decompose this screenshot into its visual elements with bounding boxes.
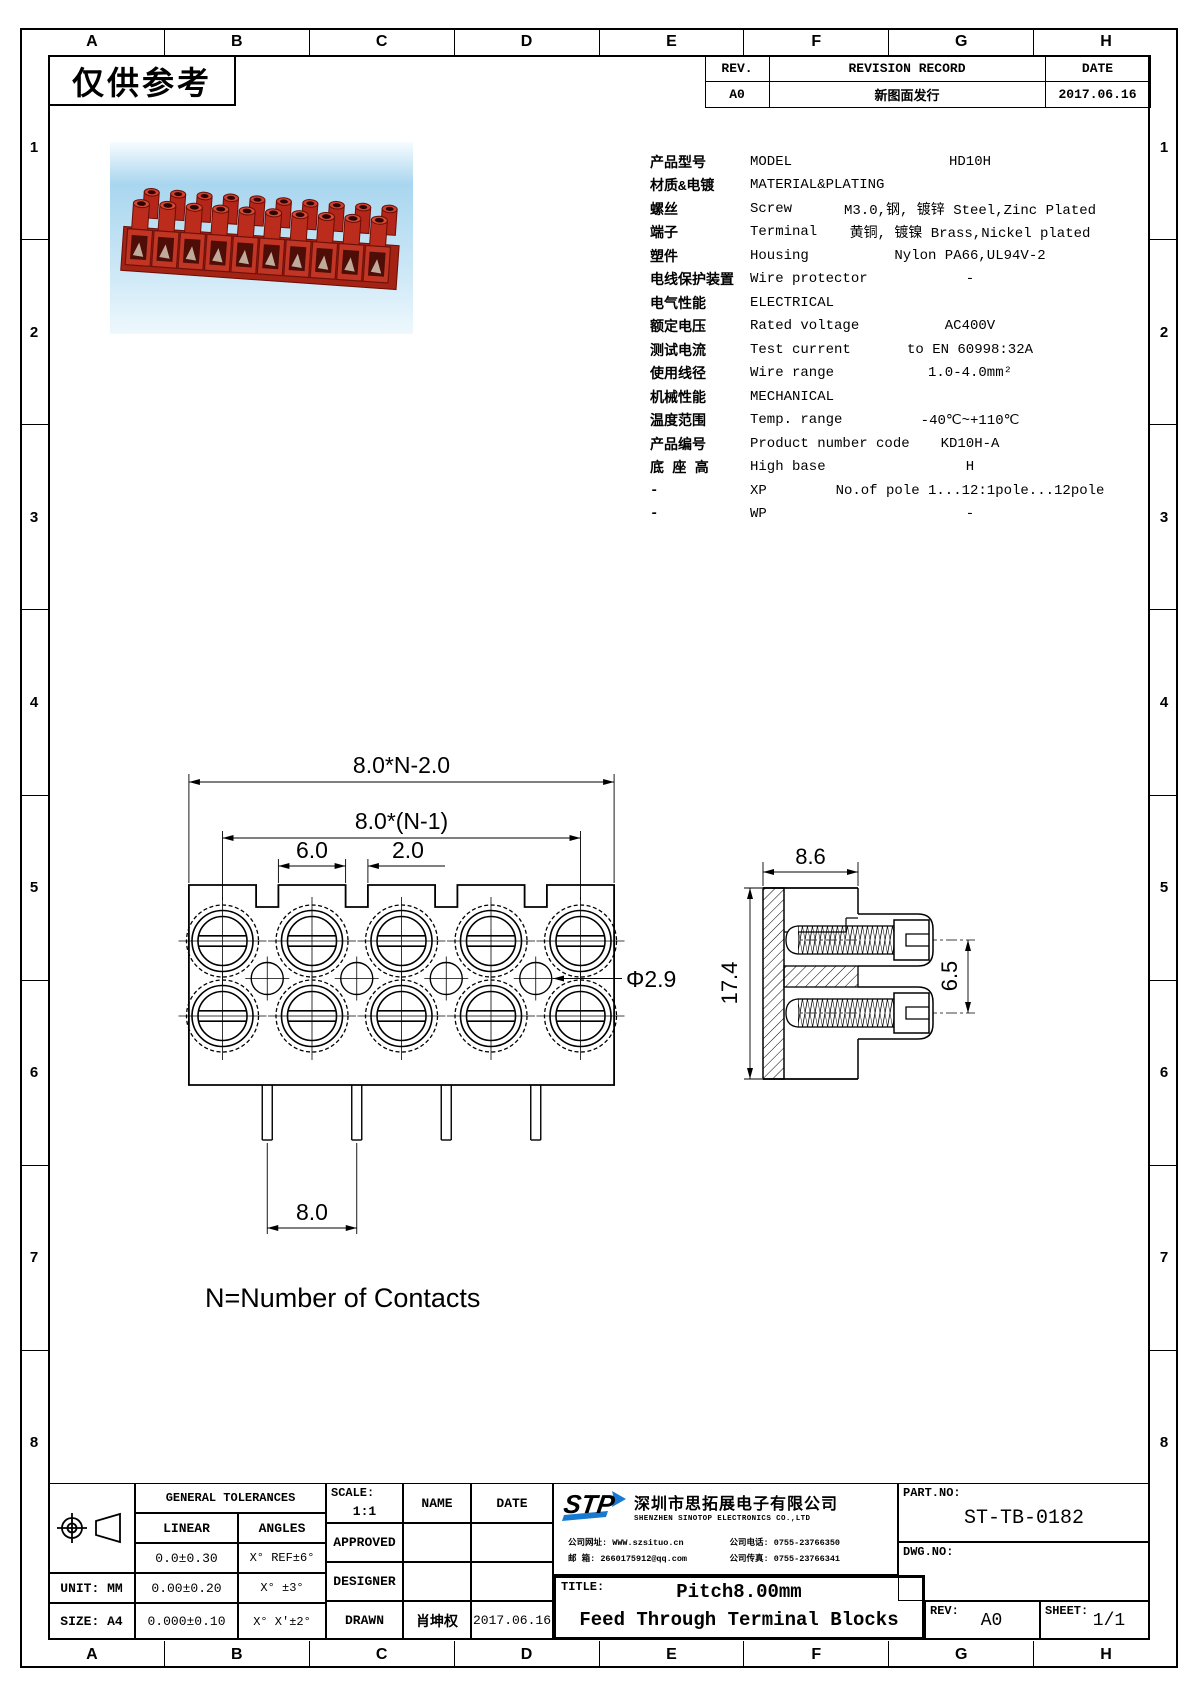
grid-letter: D [455, 28, 600, 55]
phone-value: 0755-23766350 [774, 1538, 840, 1548]
company-phone: 公司电话: 0755-23766350 [730, 1536, 892, 1552]
spec-label-cn: - [650, 503, 750, 527]
drawn-date: 2017.06.16 [471, 1601, 553, 1640]
contacts-note: N=Number of Contacts [205, 1283, 480, 1314]
spec-label-cn: 材质&电镀 [650, 174, 750, 198]
drawing-title-line2: Feed Through Terminal Blocks [556, 1609, 922, 1631]
spec-value-text: M3.0,钢, 镀锌 Steel,Zinc Plated [844, 199, 1096, 219]
grid-number: 7 [20, 1166, 48, 1351]
spec-value: to EN 60998:32A [915, 338, 1025, 362]
company-email: 邮 箱: 2660175912@qq.com [568, 1552, 730, 1568]
product-photo [110, 142, 413, 334]
grid-letters-top: A B C D E F G H [20, 28, 1178, 55]
designer-name [403, 1562, 471, 1601]
side-view-drawing: 8.6 17.4 6.5 [700, 820, 1010, 1120]
spec-label-cn: - [650, 479, 750, 503]
revision-table: REV. REVISION RECORD DATE A0 新图面发行 2017.… [705, 55, 1150, 107]
revision-record-value: 新图面发行 [769, 81, 1046, 108]
scale-cell: SCALE: 1:1 [326, 1483, 403, 1523]
spec-label-en: MECHANICAL [750, 385, 915, 409]
angles-tol-2: X° ±3° [238, 1573, 326, 1603]
spec-value-text: No.of pole 1...12:1pole...12pole [836, 483, 1105, 499]
phone-label: 公司电话: [730, 1538, 769, 1548]
company-website: 公司网址: WWW.szsituo.cn [568, 1536, 730, 1552]
spec-value: KD10H-A [915, 432, 1025, 456]
spec-label-en: Housing [750, 244, 915, 268]
reference-only-stamp: 仅供参考 [48, 55, 236, 106]
grid-letter: E [600, 28, 745, 55]
spec-value: 1.0-4.0mm² [915, 362, 1025, 386]
side-screw-upper [786, 914, 975, 966]
name-header: NAME [403, 1483, 471, 1523]
spec-value-text: 1.0-4.0mm² [928, 365, 1012, 381]
grid-number: 4 [20, 610, 48, 795]
rev-label: REV: [930, 1604, 959, 1618]
spec-label-cn: 产品型号 [650, 150, 750, 174]
tolerances-header: GENERAL TOLERANCES [135, 1483, 326, 1513]
spec-label-cn: 电气性能 [650, 291, 750, 315]
approved-name [403, 1523, 471, 1562]
dim-pitch: 8.0 [296, 1199, 328, 1225]
dim-side-width: 8.6 [795, 844, 826, 869]
drawn-name: 肖坤权 [403, 1601, 471, 1640]
grid-letter: G [889, 1641, 1034, 1668]
spec-value-text: -40℃~+110℃ [921, 412, 1020, 429]
spec-value: - [915, 268, 1025, 292]
approved-label: APPROVED [326, 1523, 403, 1562]
grid-number: 2 [1150, 240, 1178, 425]
grid-letter: E [600, 1641, 745, 1668]
grid-letter: B [165, 28, 310, 55]
angles-tol-3: X° X'±2° [238, 1603, 326, 1640]
grid-number: 6 [1150, 981, 1178, 1166]
spec-value: - [915, 503, 1025, 527]
dim-side-height: 17.4 [717, 962, 742, 1005]
grid-letter: B [165, 1641, 310, 1668]
sheet-label: SHEET: [1045, 1604, 1088, 1618]
grid-letter: A [20, 1641, 165, 1668]
scale-value: 1:1 [353, 1504, 376, 1519]
stp-logo: STP [562, 1489, 626, 1523]
part-no-cell: PART.NO: ST-TB-0182 [898, 1483, 1150, 1542]
housing-section [763, 888, 858, 1079]
grid-letter: D [455, 1641, 600, 1668]
grid-letter: H [1034, 28, 1178, 55]
email-label: 邮 箱: [568, 1554, 595, 1564]
revision-date-value: 2017.06.16 [1045, 81, 1151, 108]
company-contacts: 公司网址: WWW.szsituo.cn 公司电话: 0755-23766350… [568, 1536, 891, 1568]
email-value: 2660175912@qq.com [600, 1554, 687, 1564]
sheet-value: 1/1 [1093, 1611, 1125, 1631]
spec-value: No.of pole 1...12:1pole...12pole [915, 479, 1025, 503]
drawing-title-line1: Pitch8.00mm [556, 1581, 922, 1603]
approved-date [471, 1523, 553, 1562]
grid-letter: G [889, 28, 1034, 55]
spec-label-en: MATERIAL&PLATING [750, 174, 915, 198]
sheet-cell: SHEET: 1/1 [1040, 1601, 1150, 1640]
rev-header: REV. [705, 55, 770, 82]
fax-label: 公司传真: [730, 1554, 769, 1564]
dim-overall: 8.0*N-2.0 [353, 752, 450, 778]
dwg-no-cell: DWG.NO: [898, 1542, 1150, 1601]
spec-label-cn: 使用线径 [650, 362, 750, 386]
dim-screw-spacing: 6.5 [937, 961, 962, 992]
spec-label-en: WP [750, 503, 915, 527]
spec-label-cn: 塑件 [650, 244, 750, 268]
company-name-en: SHENZHEN SINOTOP ELECTRONICS CO.,LTD [634, 1515, 838, 1523]
spec-label-en: Rated voltage [750, 315, 915, 339]
unit-cell: UNIT: MM [48, 1573, 135, 1603]
part-no-value: ST-TB-0182 [964, 1507, 1084, 1530]
dwg-no-label: DWG.NO: [903, 1545, 953, 1559]
spec-label-en: Temp. range [750, 409, 915, 433]
spec-value: M3.0,钢, 镀锌 Steel,Zinc Plated [915, 197, 1025, 221]
spec-value-text: AC400V [945, 318, 995, 334]
company-name-cn: 深圳市思拓展电子有限公司 [634, 1490, 838, 1514]
spec-value-text: - [966, 506, 974, 522]
spec-label-en: MODEL [750, 150, 915, 174]
grid-number: 4 [1150, 610, 1178, 795]
grid-letter: A [20, 28, 165, 55]
grid-letter: H [1034, 1641, 1178, 1668]
spec-label-en: Wire protector [750, 268, 915, 292]
spec-value-text: to EN 60998:32A [907, 342, 1033, 358]
spec-label-cn: 产品编号 [650, 432, 750, 456]
dim-pitch-total: 8.0*(N-1) [355, 808, 448, 834]
grid-number: 8 [1150, 1351, 1178, 1535]
spec-label-cn: 温度范围 [650, 409, 750, 433]
spec-value: HD10H [915, 150, 1025, 174]
spec-value: H [915, 456, 1025, 480]
spec-label-cn: 额定电压 [650, 315, 750, 339]
spec-value: -40℃~+110℃ [915, 409, 1025, 433]
grid-number: 3 [20, 425, 48, 610]
angles-tol-1: X° REF±6° [238, 1543, 326, 1573]
title-cell: TITLE: Pitch8.00mm Feed Through Terminal… [553, 1575, 925, 1640]
spec-value-text: - [966, 271, 974, 287]
grid-letter: F [744, 28, 889, 55]
grid-number: 3 [1150, 425, 1178, 610]
designer-label: DESIGNER [326, 1562, 403, 1601]
projection-symbol-icon [54, 1508, 130, 1548]
linear-tol-3: 0.000±0.10 [135, 1603, 238, 1640]
spec-value-text: KD10H-A [941, 436, 1000, 452]
projection-symbol-cell [48, 1483, 135, 1573]
website-value: WWW.szsituo.cn [612, 1538, 683, 1548]
spec-value [915, 174, 1025, 198]
rev-cell: REV: A0 [925, 1601, 1040, 1640]
spec-label-cn: 机械性能 [650, 385, 750, 409]
spec-value [915, 291, 1025, 315]
drawn-label: DRAWN [326, 1601, 403, 1640]
spec-value: AC400V [915, 315, 1025, 339]
grid-letter: C [310, 1641, 455, 1668]
spec-label-cn: 底 座 高 [650, 456, 750, 480]
website-label: 公司网址: [568, 1538, 607, 1548]
title-block: UNIT: MM SIZE: A4 GENERAL TOLERANCES LIN… [48, 1483, 1150, 1640]
dim-gap: 2.0 [392, 837, 424, 863]
date-header: DATE [1045, 55, 1151, 82]
spec-value: 黄铜, 镀镍 Brass,Nickel plated [915, 221, 1025, 245]
rev-value: A0 [981, 1611, 1003, 1631]
rev-value: A0 [705, 81, 770, 108]
spec-label-cn: 电线保护装置 [650, 268, 750, 292]
spec-label-cn: 螺丝 [650, 197, 750, 221]
grid-number: 8 [20, 1351, 48, 1535]
spec-label-cn: 测试电流 [650, 338, 750, 362]
spec-label-en: Test current [750, 338, 915, 362]
center-wall-section [784, 966, 858, 987]
grid-number: 1 [1150, 55, 1178, 240]
grid-number: 1 [20, 55, 48, 240]
grid-letter: F [744, 1641, 889, 1668]
date-header: DATE [471, 1483, 553, 1523]
dim-tab: 6.0 [296, 837, 328, 863]
stp-logo-text: STP [562, 1489, 617, 1519]
linear-tol-1: 0.0±0.30 [135, 1543, 238, 1573]
designer-date [471, 1562, 553, 1601]
revision-record-header: REVISION RECORD [769, 55, 1046, 82]
drawing-sheet: A B C D E F G H A B C D E F G H 1 2 3 4 … [0, 0, 1199, 1696]
grid-number: 6 [20, 981, 48, 1166]
grid-letters-bottom: A B C D E F G H [20, 1641, 1178, 1668]
spec-value-text: Nylon PA66,UL94V-2 [894, 248, 1045, 264]
dim-hole: Φ2.9 [626, 966, 676, 992]
part-no-label: PART.NO: [903, 1486, 961, 1500]
spec-value [915, 385, 1025, 409]
company-fax: 公司传真: 0755-23766341 [730, 1552, 892, 1568]
grid-letter: C [310, 28, 455, 55]
spec-value-text: HD10H [949, 154, 991, 170]
spec-table: 产品型号 MODEL HD10H 材质&电镀 MATERIAL&PLATING … [650, 150, 1075, 526]
grid-number: 2 [20, 240, 48, 425]
spec-label-en: ELECTRICAL [750, 291, 915, 315]
company-cell: STP 深圳市思拓展电子有限公司 SHENZHEN SINOTOP ELECTR… [553, 1483, 898, 1575]
angles-header: ANGLES [238, 1513, 326, 1543]
grid-number: 5 [1150, 796, 1178, 981]
grid-numbers-left: 1 2 3 4 5 6 7 8 [20, 55, 48, 1535]
spec-label-en: Product number code [750, 432, 915, 456]
scale-label: SCALE: [331, 1486, 374, 1500]
side-screw-lower [786, 987, 975, 1039]
linear-header: LINEAR [135, 1513, 238, 1543]
size-cell: SIZE: A4 [48, 1603, 135, 1640]
bottom-slots [262, 1085, 541, 1140]
spec-value-text: H [966, 459, 974, 475]
fax-value: 0755-23766341 [774, 1554, 840, 1564]
grid-numbers-right: 1 2 3 4 5 6 7 8 [1150, 55, 1178, 1535]
grid-number: 5 [20, 796, 48, 981]
spec-value: Nylon PA66,UL94V-2 [915, 244, 1025, 268]
front-view-drawing: 8.0*N-2.0 8.0*(N-1) 6.0 2.0 8.0 Φ2.9 [160, 700, 720, 1260]
linear-tol-2: 0.00±0.20 [135, 1573, 238, 1603]
spec-value-text: 黄铜, 镀镍 Brass,Nickel plated [850, 222, 1091, 242]
grid-number: 7 [1150, 1166, 1178, 1351]
spec-label-cn: 端子 [650, 221, 750, 245]
spec-label-en: Wire range [750, 362, 915, 386]
spec-label-en: High base [750, 456, 915, 480]
